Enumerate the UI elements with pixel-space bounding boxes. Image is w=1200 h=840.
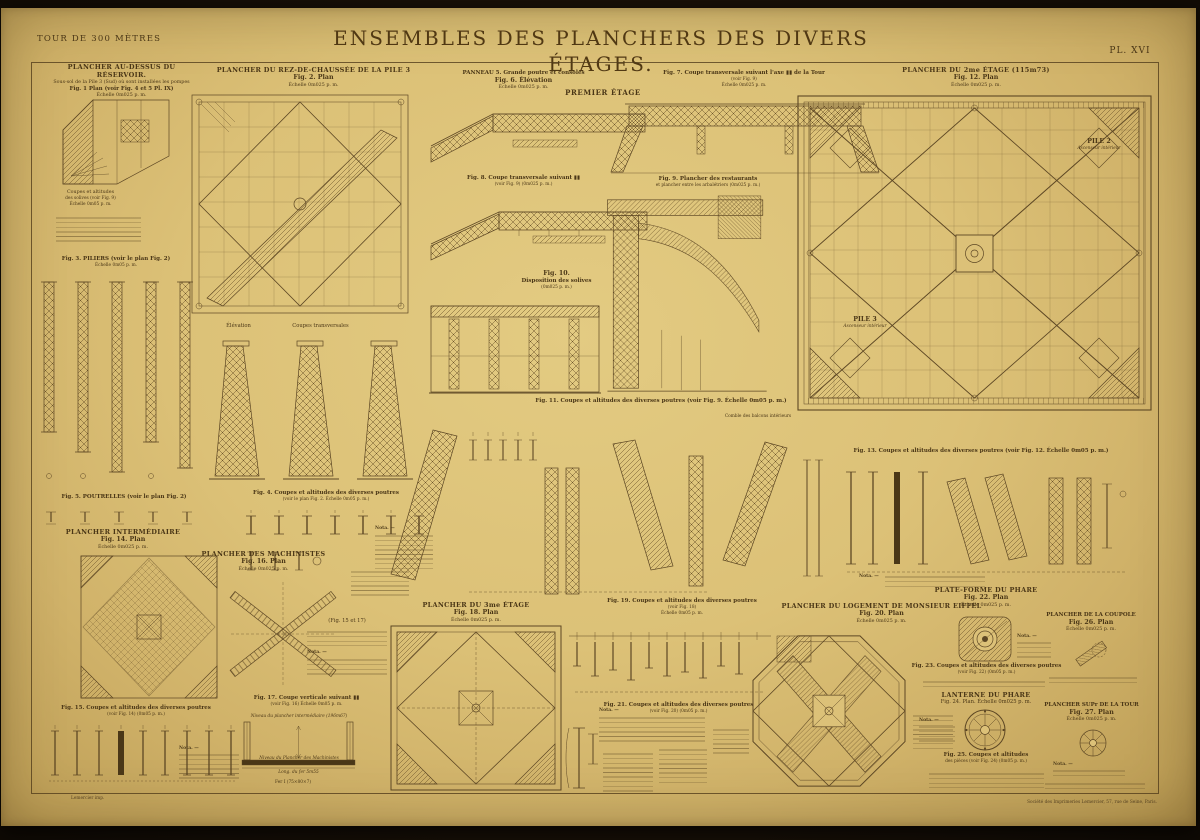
fig19-note-lines	[599, 716, 705, 744]
fig10-caption: Fig. 10.	[499, 270, 614, 278]
fig9-caption: Fig. 9. Plancher des restaurants	[613, 176, 803, 183]
fig13-nota: Nota. —	[859, 574, 879, 579]
fig15-caption: Fig. 15. Coupes et altitudes des diverse…	[41, 705, 231, 712]
solives-line3: Échelle 0m05 p. m.	[43, 202, 138, 208]
fig22-scale: Échelle 0m025 p. m.	[921, 603, 1051, 609]
fig14-scale: Échelle 0m025 p. m.	[53, 545, 193, 551]
fig1-captions: PLANCHER AU-DESSUS DU RÉSERVOIR. Sous-so…	[49, 63, 194, 99]
fig17-captions: Fig. 17. Coupe verticale suivant ▮▮ (voi…	[239, 695, 374, 708]
fig24-nota: Nota. —	[919, 718, 939, 723]
fig10-drawing	[429, 296, 601, 396]
fig5-caption: Fig. 5. POUTRELLES (voir le plan Fig. 2)	[49, 494, 199, 501]
fig2-captions: PLANCHER DU REZ-DE-CHAUSSÉE DE LA PILE 3…	[206, 66, 421, 89]
fig26-captions: PLANCHER DE LA COUPOLE Fig. 26. Plan Éch…	[1041, 612, 1141, 634]
fig27-formula-lines	[1045, 782, 1145, 790]
fig8-caption: Fig. 8. Coupe transversale suivant ▮▮	[436, 175, 611, 182]
elevation-label: Élévation	[206, 323, 271, 330]
fig16-caption: Fig. 16. Plan	[201, 558, 326, 566]
series-title: TOUR DE 300 MÈTRES	[37, 34, 217, 45]
pile3-sub: Ascenseur intérieur	[833, 324, 897, 330]
fig3-scale: Échelle 0m05 p. m.	[41, 263, 191, 269]
fig18-note-ref: (Fig. 15 et 17)	[301, 618, 393, 625]
fig13-drawing	[839, 464, 1131, 586]
fig9-drawing	[601, 194, 777, 394]
fig14-caption: Fig. 14. Plan	[53, 536, 193, 544]
fig23-scale: (voir Fig. 22) (0m05 p. m.)	[909, 670, 1064, 676]
fig1-solives-note: Coupes et altitudes des solives (voir Fi…	[43, 190, 138, 207]
fig21-note-lines2	[659, 748, 707, 784]
fig17-niveau-intermediaire: Niveau du plancher intermédiaire (196m67…	[243, 714, 355, 720]
fig17-long-fer: Long. du fer 5m55	[256, 770, 341, 776]
fig3-captions: Fig. 3. PILIERS (voir le plan Fig. 2) Éc…	[41, 256, 191, 269]
fig24-note-lines	[919, 725, 955, 743]
fig3-piliers-drawing	[35, 276, 203, 486]
fig21-note-lines1	[603, 752, 653, 792]
fig17-fer-i: Fer I (75×80×7)	[253, 780, 333, 786]
plate-paper: TOUR DE 300 MÈTRES ENSEMBLES DES PLANCHE…	[1, 8, 1196, 826]
fig25-caption: Fig. 25. Coupes et altitudes	[926, 752, 1046, 759]
fig16-scale: Échelle 0m025 p. m.	[201, 567, 326, 573]
fig22-heading: PLATE-FORME DU PHARE	[921, 586, 1051, 594]
printer-credit-right: Société des Imprimeries Lemercier, 57, r…	[1001, 800, 1157, 805]
photo-backdrop: { "page": { "series": "TOUR DE 300 MÈTRE…	[0, 0, 1200, 840]
fig10-captions: Fig. 10. Disposition des solives (0m025 …	[499, 270, 614, 291]
fig8-scale: (voir Fig. 9) (0m025 p. m.)	[436, 182, 611, 188]
pile2-label-group: PILE 2 Ascenseur intérieur	[1067, 138, 1131, 152]
fig26-formula-lines	[1049, 676, 1137, 684]
fig18-scale: Échelle 0m025 p. m.	[386, 618, 566, 624]
fig26-heading: PLANCHER DE LA COUPOLE	[1041, 612, 1141, 619]
fig23-formula-lines	[923, 680, 1045, 689]
fig10-subtitle: Disposition des solives	[499, 278, 614, 285]
fig12-captions: PLANCHER DU 2me ÉTAGE (115m73) Fig. 12. …	[861, 66, 1091, 89]
fig23-caption: Fig. 23. Coupes et altitudes des diverse…	[909, 663, 1064, 670]
fig17-niveau-machinistes: Niveau du Plancher des Machinistes	[245, 756, 353, 762]
fig27-note-lines	[1053, 769, 1125, 778]
fig27-heading: PLANCHER SUPr DE LA TOUR	[1039, 702, 1144, 709]
fig22-note-lines	[1017, 641, 1051, 659]
fig25-scale: des pièces (voir Fig. 24) (0m05 p. m.)	[926, 759, 1046, 765]
pile2-sub: Ascenseur intérieur	[1067, 146, 1131, 152]
fig22-captions: PLATE-FORME DU PHARE Fig. 22. Plan Échel…	[921, 586, 1051, 609]
fig9-captions: Fig. 9. Plancher des restaurants et plan…	[613, 176, 803, 189]
fig11-note-lines	[375, 534, 433, 572]
fig13-caption: Fig. 13. Coupes et altitudes des diverse…	[836, 448, 1126, 455]
fig15-captions: Fig. 15. Coupes et altitudes des diverse…	[41, 705, 231, 718]
coupes-transversales-label: Coupes transversales	[273, 323, 368, 330]
fig25-formula-lines	[929, 772, 1044, 788]
fig11-caption: Fig. 11. Coupes et altitudes des diverse…	[501, 398, 821, 405]
fig24-drawing	[963, 708, 1007, 752]
fig2-heading: PLANCHER DU REZ-DE-CHAUSSÉE DE LA PILE 3	[206, 66, 421, 74]
fig22-caption: Fig. 22. Plan	[921, 594, 1051, 602]
fig12-caption: Fig. 12. Plan	[861, 74, 1091, 82]
fig12-scale: Échelle 0m025 p. m.	[861, 83, 1091, 89]
fig27-drawing	[1078, 728, 1108, 758]
fig25-captions: Fig. 25. Coupes et altitudes des pièces …	[926, 752, 1046, 765]
fig12-heading: PLANCHER DU 2me ÉTAGE (115m73)	[861, 66, 1091, 74]
fig15-nota: Nota. —	[179, 746, 199, 751]
fig20-side-note-lines	[713, 728, 749, 754]
fig7-caption: Fig. 7. Coupe transversale suivant l'axe…	[609, 70, 879, 77]
fig22-nota: Nota. —	[1017, 634, 1037, 639]
fig11-nota: Nota. —	[375, 526, 395, 531]
pile2-label: PILE 2	[1067, 138, 1131, 146]
fig7-scale: Échelle 0m025 p. m.	[609, 83, 879, 89]
fig1-note-lines	[56, 216, 141, 242]
fig11-drawing	[373, 416, 829, 600]
pile3-label: PILE 3	[833, 316, 897, 324]
fig2-caption: Fig. 2. Plan	[206, 74, 421, 82]
fig15-scale: (voir Fig. 14) (0m05 p. m.)	[41, 712, 231, 718]
fig26-scale: Échelle 0m025 p. m.	[1041, 627, 1141, 633]
fig18-drawing	[389, 624, 563, 792]
fig9-subtitle: et plancher entre les arbalétriers (0m02…	[613, 183, 803, 189]
pile3-label-group: PILE 3 Ascenseur intérieur	[833, 316, 897, 330]
fig5-sections-drawing	[41, 508, 209, 526]
fig17-drawing	[241, 720, 356, 770]
fig27-nota: Nota. —	[1053, 762, 1073, 767]
fig18-note-lines1	[307, 630, 387, 646]
fig18-captions: PLANCHER DU 3me ÉTAGE Fig. 18. Plan Éche…	[386, 601, 566, 624]
fig18-side-note: (Fig. 15 et 17)	[301, 618, 393, 625]
fig24-caption: Fig. 24. Plan. Échelle 0m025 p. m.	[921, 699, 1051, 706]
fig27-captions: PLANCHER SUPr DE LA TOUR Fig. 27. Plan É…	[1039, 702, 1144, 724]
fig2-drawing	[191, 94, 409, 314]
fig26-drawing	[1073, 640, 1111, 666]
fig8-captions: Fig. 8. Coupe transversale suivant ▮▮ (v…	[436, 175, 611, 188]
fig7-captions: Fig. 7. Coupe transversale suivant l'axe…	[609, 70, 879, 88]
fig2-scale: Échelle 0m025 p. m.	[206, 83, 421, 89]
fig23-captions: Fig. 23. Coupes et altitudes des diverse…	[909, 663, 1064, 676]
fig1-heading: PLANCHER AU-DESSUS DU RÉSERVOIR.	[49, 63, 194, 80]
fig22-drawing	[956, 614, 1014, 664]
fig21-sections-drawing	[563, 724, 601, 794]
printer-credit-left: Lemercier imp.	[71, 796, 151, 801]
fig10-scale: (0m025 p. m.)	[499, 285, 614, 291]
fig14-captions: PLANCHER INTERMÉDIAIRE Fig. 14. Plan Éch…	[53, 528, 193, 551]
fig18-caption: Fig. 18. Plan	[386, 609, 566, 617]
fig17-scale: (voir Fig. 16) Échelle 0m05 p. m.	[239, 702, 374, 708]
plate-number: PL. XVI	[1099, 46, 1161, 58]
fig27-scale: Échelle 0m025 p. m.	[1039, 717, 1144, 723]
fig16-captions: PLANCHER DES MACHINISTES Fig. 16. Plan É…	[201, 550, 326, 573]
fig18-note-lines2	[307, 658, 387, 678]
fig14-heading: PLANCHER INTERMÉDIAIRE	[53, 528, 193, 536]
fig18-heading: PLANCHER DU 3me ÉTAGE	[386, 601, 566, 609]
fig1-drawing	[57, 96, 173, 188]
fig20-drawing	[749, 626, 909, 792]
fig16-heading: PLANCHER DES MACHINISTES	[201, 550, 326, 558]
fig24-captions: LANTERNE DU PHARE Fig. 24. Plan. Échelle…	[921, 691, 1051, 706]
fig18-nota: Nota. —	[307, 650, 327, 655]
fig14-drawing	[79, 554, 219, 700]
fig15-note-lines	[179, 753, 239, 779]
